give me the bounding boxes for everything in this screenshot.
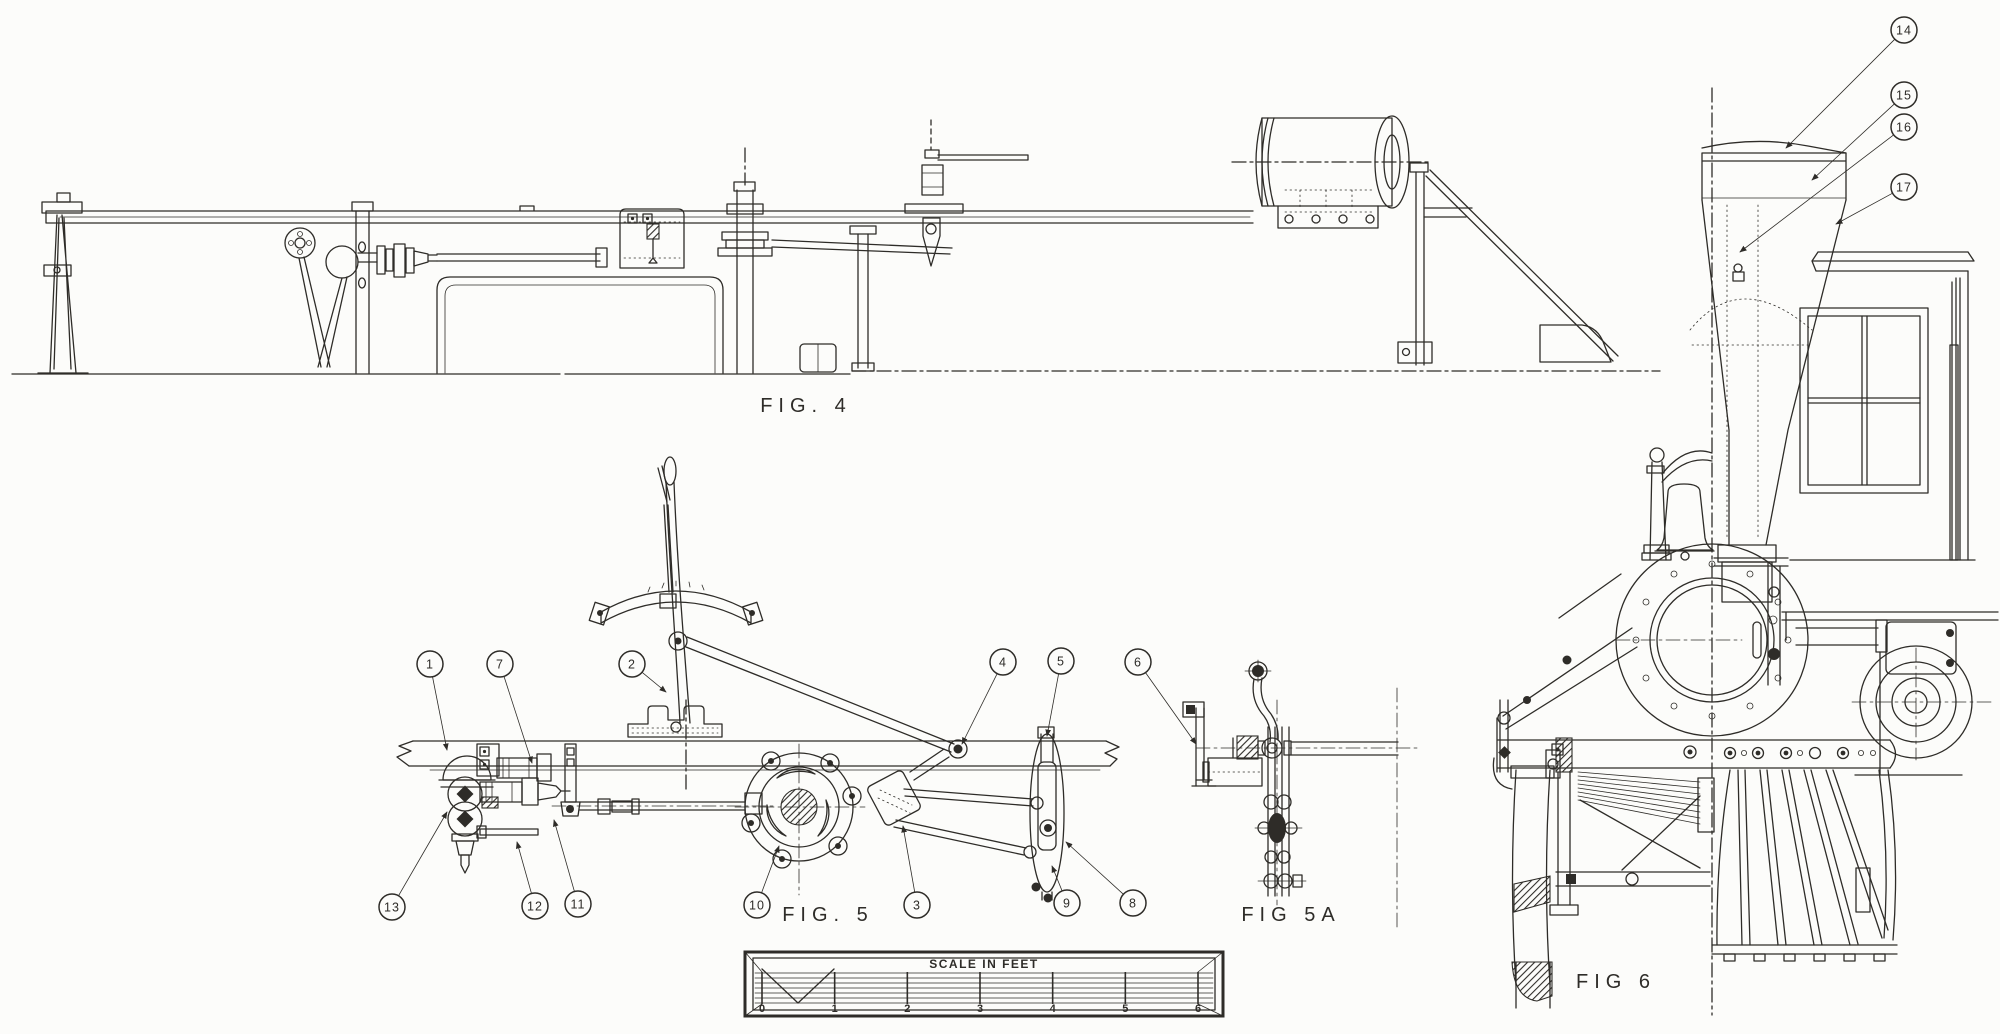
fig5-reverse-lever: [658, 457, 690, 723]
callout-leader-14: [1786, 40, 1894, 148]
callout-3: 3: [903, 826, 930, 918]
callout-number-11: 11: [571, 898, 586, 912]
callout-number-16: 16: [1896, 121, 1912, 135]
figure-label-fig6: FIG 6: [1576, 971, 1656, 993]
fig5-valve-group: [439, 744, 570, 873]
callout-leader-11: [554, 820, 574, 891]
callout-11: 11: [554, 820, 591, 917]
callout-5: 5: [1047, 648, 1074, 736]
callout-number-2: 2: [628, 658, 636, 672]
callout-leader-7: [504, 677, 532, 763]
fig4-pulley-wheels: [285, 228, 358, 367]
fig4-bracket-box: [620, 209, 684, 268]
scale-bar-ticks: 0123456: [759, 972, 1201, 1015]
callout-number-3: 3: [913, 899, 921, 913]
callout-number-8: 8: [1129, 897, 1137, 911]
callout-number-5: 5: [1057, 655, 1065, 669]
fig6-bell: [1642, 448, 1714, 560]
callout-4: 4: [962, 649, 1016, 744]
fig6-cab: [1790, 252, 1975, 560]
fig5-lifting-shaft-flange: [735, 744, 865, 895]
callout-leader-1: [433, 677, 447, 750]
fig4-diagonal-support: [1398, 163, 1618, 365]
fig4-hanger-post: [352, 202, 373, 373]
fig4-equipment-box: [437, 277, 723, 373]
fig6-wheel: [1511, 766, 1554, 1008]
figure-label-fig5a: FIG 5A: [1241, 904, 1340, 926]
callout-number-4: 4: [999, 656, 1007, 670]
scale-tick-label-3: 3: [977, 1003, 983, 1015]
scale-tick-label-5: 5: [1122, 1003, 1128, 1015]
callout-leader-15: [1812, 104, 1894, 180]
callout-13: 13: [379, 812, 447, 920]
callout-leader-4: [962, 674, 997, 744]
scale-tick-label-1: 1: [832, 1003, 838, 1015]
callout-number-17: 17: [1896, 181, 1912, 195]
callout-1: 1: [417, 651, 447, 750]
fig6-front-elevation-drawing: [1493, 88, 1998, 1015]
callout-2: 2: [619, 651, 666, 692]
fig6-spring-and-frame: [1546, 738, 1714, 915]
fig5-reach-link: [686, 637, 954, 752]
scale-tick-label-6: 6: [1195, 1003, 1201, 1015]
fig5-hanger-and-rod: [552, 744, 775, 816]
callout-leader-8: [1066, 842, 1123, 894]
callout-12: 12: [517, 842, 548, 919]
fig5a-bell-crank-drawing: [1183, 660, 1420, 928]
scale-bar: 0123456 SCALE IN FEET: [745, 952, 1223, 1016]
scale-tick-label-0: 0: [759, 1003, 765, 1015]
fig4-lubricator-valve: [905, 120, 1028, 266]
fig4-center-pedestal: [718, 148, 952, 373]
callout-number-15: 15: [1896, 89, 1912, 103]
callout-number-1: 1: [426, 658, 434, 672]
fig4-side-elevation-drawing: [12, 116, 1660, 374]
callout-number-7: 7: [496, 658, 504, 672]
callout-6: 6: [1125, 649, 1196, 744]
fig5a-horizontal-rod: [1291, 742, 1398, 755]
callout-16: 16: [1740, 114, 1917, 252]
callout-leader-13: [399, 812, 447, 895]
fig5-bellcrank-pin: [954, 745, 963, 754]
figure-label-fig4: FIG. 4: [760, 395, 852, 417]
callout-number-14: 14: [1896, 24, 1912, 38]
callout-number-6: 6: [1134, 656, 1142, 670]
callout-leader-2: [642, 673, 666, 692]
callout-7: 7: [487, 651, 532, 763]
fig4-shaft-coupling: [358, 244, 607, 277]
drawing-sheet: 0123456 SCALE IN FEET FIG. 4FIG. 5FIG 5A…: [0, 0, 2000, 1034]
scale-tick-label-4: 4: [1050, 1003, 1057, 1015]
engineering-drawing-canvas: 0123456 SCALE IN FEET FIG. 4FIG. 5FIG 5A…: [0, 0, 2000, 1034]
scale-tick-label-2: 2: [904, 1003, 910, 1015]
callout-leader-12: [517, 842, 531, 893]
fig5a-cylinder: [1203, 736, 1262, 786]
fig6-cylinder-assembly: [1782, 612, 1998, 775]
fig5-frame-rail: [397, 741, 1119, 770]
figure-label-fig5: FIG. 5: [782, 904, 874, 926]
fig6-pilot-cowcatcher: [1712, 770, 1897, 961]
callout-number-10: 10: [749, 899, 765, 913]
scale-bar-rule-lines: [755, 973, 1213, 1003]
callout-number-12: 12: [527, 900, 543, 914]
fig6-smokestack: [1690, 141, 1846, 602]
fig5-eccentric-strap: [1030, 727, 1064, 903]
fig5a-bracket: [1183, 702, 1216, 786]
scale-bar-title: SCALE IN FEET: [929, 957, 1039, 971]
callout-number-13: 13: [384, 901, 400, 915]
callout-number-9: 9: [1063, 897, 1071, 911]
callout-17: 17: [1836, 174, 1917, 224]
callout-9: 9: [1052, 866, 1080, 916]
callout-layer: 1724561312111039814151617: [379, 17, 1917, 920]
callout-leader-3: [903, 826, 915, 892]
fig5-lever-base: [628, 700, 722, 792]
fig4-reservoir-drum: [1232, 116, 1428, 228]
